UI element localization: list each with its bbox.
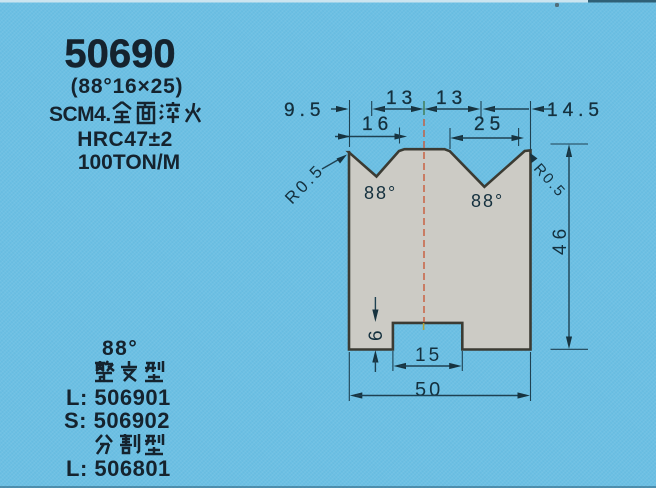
svg-text:L: 506801: L: 506801 xyxy=(66,456,171,481)
svg-text:50690: 50690 xyxy=(64,32,175,76)
svg-text:88°: 88° xyxy=(364,183,397,203)
svg-text:50: 50 xyxy=(415,379,443,401)
svg-text:100TON/M: 100TON/M xyxy=(78,151,180,174)
svg-text:88°: 88° xyxy=(471,191,504,211)
svg-text:(88°16×25): (88°16×25) xyxy=(71,75,184,98)
svg-text:15: 15 xyxy=(415,345,442,366)
svg-text:R0.5: R0.5 xyxy=(530,160,569,201)
svg-text:13: 13 xyxy=(436,88,467,109)
svg-text:16: 16 xyxy=(362,114,393,135)
svg-text:R0.5: R0.5 xyxy=(281,160,328,208)
svg-text:46: 46 xyxy=(550,224,571,255)
svg-text:S: 506902: S: 506902 xyxy=(64,408,170,433)
svg-text:L: 506901: L: 506901 xyxy=(66,385,171,410)
svg-text:13: 13 xyxy=(386,88,417,109)
svg-text:14.5: 14.5 xyxy=(547,100,604,121)
svg-text:HRC47±2: HRC47±2 xyxy=(77,128,173,151)
svg-text:6: 6 xyxy=(366,330,387,341)
svg-text:SCM4.: SCM4. xyxy=(49,103,111,126)
svg-text:88°: 88° xyxy=(102,337,138,360)
svg-text:9.5: 9.5 xyxy=(284,100,325,121)
svg-text:25: 25 xyxy=(474,114,505,135)
